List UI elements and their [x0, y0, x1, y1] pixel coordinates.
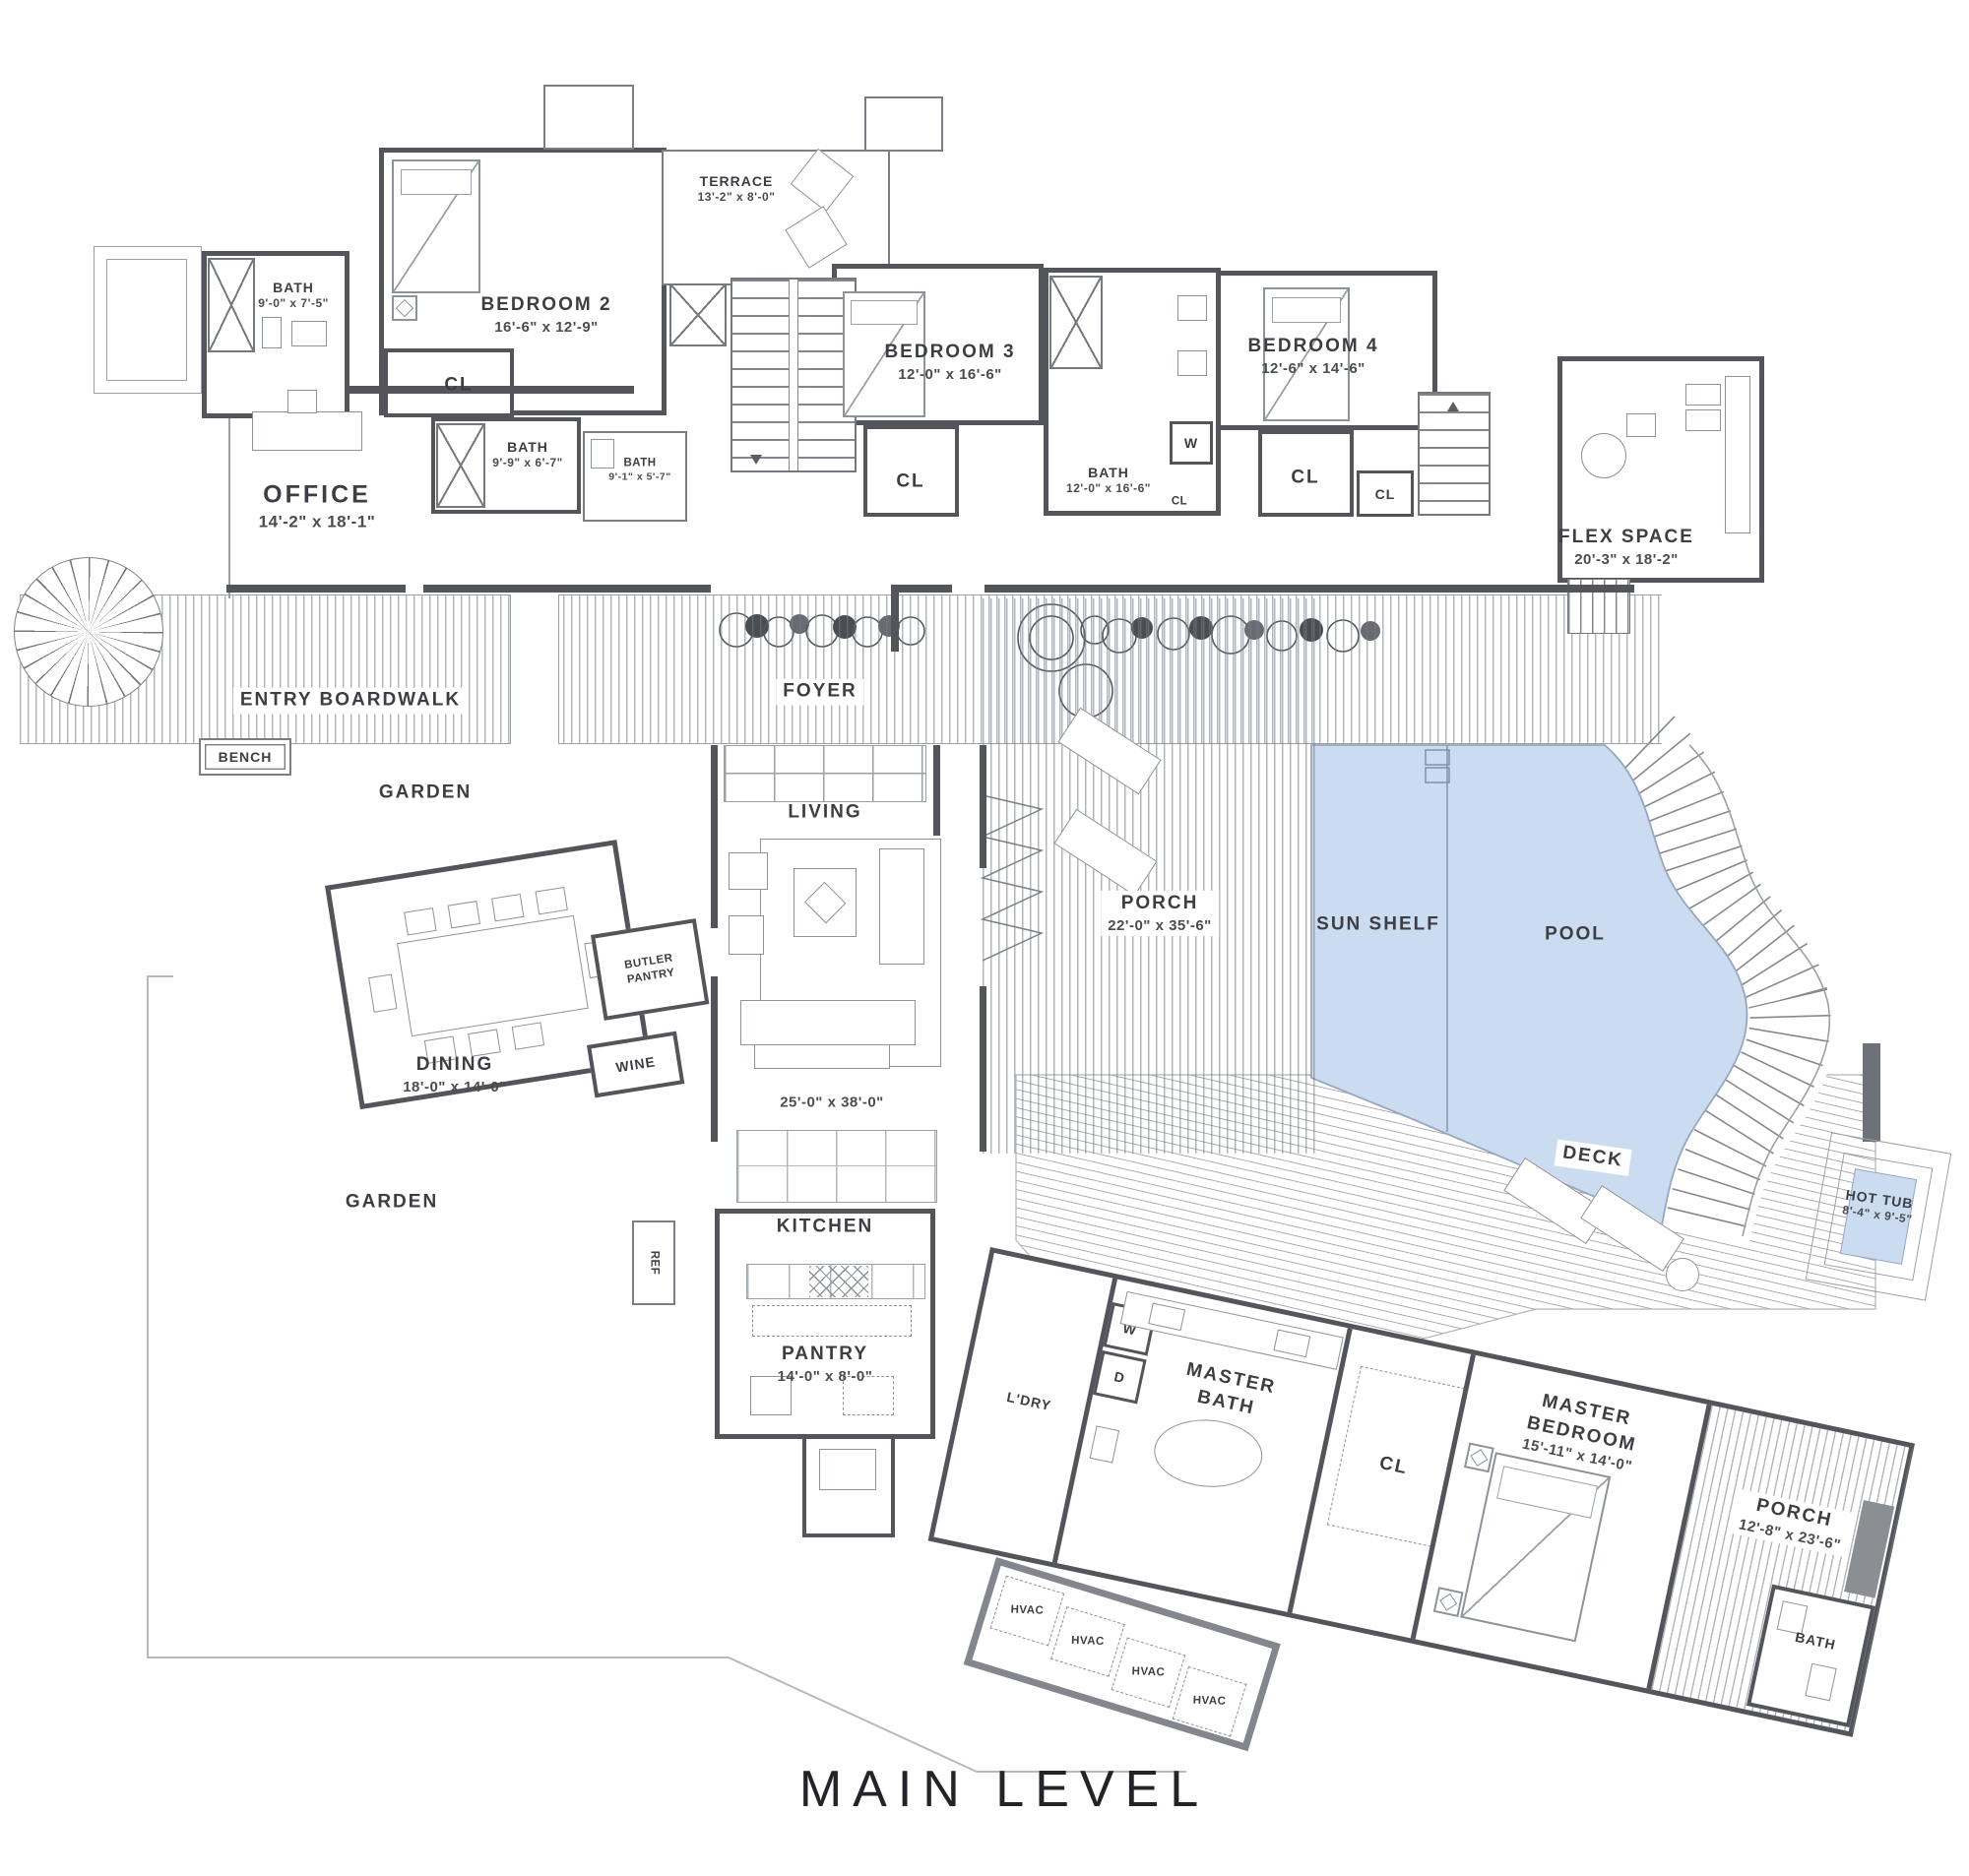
porch-area [983, 598, 1315, 1154]
room-label-bedroom3: BEDROOM 312'-0" x 16'-6" [884, 341, 1015, 384]
office-chair [287, 390, 317, 413]
area-label-garden2: GARDEN [346, 1191, 438, 1216]
kitchen-island [740, 1000, 916, 1045]
master-tub [1152, 1416, 1264, 1491]
steps-dark-post [1863, 1043, 1880, 1142]
room-label-butler-pantry: BUTLER PANTRY [603, 948, 697, 991]
room-label-terrace: TERRACE13'-2" x 8'-0" [698, 172, 776, 206]
flex-cushion2 [1685, 409, 1721, 431]
pool-label-sun-shelf: SUN SHELF [1316, 913, 1440, 938]
sink-bath4b [1177, 350, 1207, 376]
pool-label: POOL [1545, 923, 1606, 948]
shower-bath2 [436, 423, 485, 508]
boardwalk-step-gap [510, 594, 559, 744]
room-label-pantry: PANTRY14'-0" x 8'-0" [778, 1343, 873, 1386]
left-protrusion-inner [106, 259, 187, 381]
nightstand-master2 [1433, 1587, 1464, 1617]
wing-wall-1 [1052, 1279, 1117, 1564]
living-sofa-right [879, 848, 924, 965]
flex-sofa [1725, 376, 1750, 533]
room-label-bedroom4: BEDROOM 412'-6" x 14'-6" [1247, 335, 1378, 378]
bed-master [1460, 1452, 1611, 1642]
pantry-bumpout-inner [819, 1449, 876, 1490]
table-decor [804, 882, 846, 923]
hvac-label: HVAC [1131, 1664, 1165, 1680]
master-toilet [1090, 1425, 1120, 1463]
page-title: MAIN LEVEL [799, 1760, 1209, 1819]
room-butler-pantry: BUTLER PANTRY [591, 918, 709, 1021]
dining-chair [536, 887, 568, 914]
closet-label-bath4: CL [1172, 495, 1187, 510]
room-label-master-bath: MASTER BATH [1161, 1354, 1296, 1428]
hvac-label: HVAC [1010, 1603, 1044, 1619]
hvac-unit: HVAC [1173, 1666, 1247, 1737]
area-label-entry-boardwalk: ENTRY BOARDWALK [233, 688, 468, 715]
toilet-bath-tl [262, 317, 282, 348]
hvac-label: HVAC [1071, 1634, 1105, 1650]
bed-pillow [1496, 1466, 1597, 1518]
ref-label: REF [647, 1251, 662, 1276]
living-right-wall [933, 745, 940, 836]
hvac-unit: HVAC [1050, 1606, 1125, 1677]
main-wall-c [891, 585, 952, 593]
room-label-bath-tl: BATH9'-0" x 7'-5" [258, 279, 329, 312]
main-wall-b [423, 585, 711, 593]
nightstand-master1 [1464, 1442, 1494, 1472]
closet-label-bedroom4b: CL [1375, 485, 1396, 503]
main-stairs [730, 278, 857, 472]
dining-chair [512, 1022, 544, 1049]
flex-cushion1 [1685, 384, 1721, 406]
room-label-living: LIVING [788, 801, 861, 826]
flex-table [1626, 413, 1656, 437]
living-dimensions: 25'-0" x 38'-0" [780, 1093, 884, 1112]
room-label-flex-space: FLEX SPACE20'-3" x 18'-2" [1558, 526, 1694, 569]
floor-plan-canvas: BUTLER PANTRY WINE REF W D [0, 0, 1969, 1876]
living-left-wall-a [711, 745, 718, 928]
bed-pillow [401, 169, 472, 195]
flex-chair [1581, 433, 1626, 478]
main-wall-d [984, 585, 1634, 593]
ref-closet: REF [632, 1220, 675, 1305]
porch-left-wall-a [980, 745, 986, 868]
main-wall-a [226, 585, 406, 593]
deck-table [1666, 1258, 1699, 1291]
porch-left-wall-b [980, 986, 986, 1152]
living-coffee-table [794, 868, 857, 937]
kitchen-counter [736, 1130, 937, 1203]
area-label-foyer: FOYER [776, 679, 863, 706]
area-label-porch-main: PORCH22'-0" x 35'-6" [1101, 891, 1219, 936]
closet-label-bedroom4: CL [1291, 467, 1319, 491]
dining-table [397, 915, 589, 1036]
pantry-stove-hatch [809, 1266, 868, 1297]
bed-bedroom2 [392, 159, 480, 293]
dryer-label: D [1112, 1367, 1127, 1387]
hvac-unit: HVAC [990, 1576, 1065, 1647]
dining-chair [368, 973, 397, 1012]
hvac-unit: HVAC [1112, 1637, 1186, 1708]
pantry-shelf-dashed [752, 1305, 912, 1337]
nightstand [392, 295, 417, 321]
bed-pillow [1272, 297, 1342, 323]
bedroom2-bumpout [543, 85, 634, 150]
shower-bath4 [1049, 276, 1103, 369]
room-label-wine: WINE [614, 1052, 657, 1076]
room-label-bath2: BATH9'-9" x 6'-7" [492, 438, 563, 471]
entry-boardwalk-strip [20, 594, 1662, 744]
living-window-row [724, 745, 926, 802]
office-desk [252, 411, 362, 451]
dining-chair [448, 901, 480, 928]
skylight-stair [669, 283, 727, 346]
living-chair2 [729, 915, 764, 955]
room-label-bath4: BATH12'-0" x 16'-6" [1066, 464, 1151, 497]
room-label-dining: DINING18'-0" x 14'-0" [403, 1053, 507, 1096]
shower-bath-tl [208, 258, 255, 352]
closet-label-bedroom3: CL [896, 470, 924, 495]
living-chair1 [729, 852, 768, 890]
room-label-kitchen: KITCHEN [772, 1216, 878, 1240]
room-label-bath3: BATH9'-1" x 5'-7" [608, 457, 670, 485]
closet-label-bedroom2: CL [444, 374, 473, 399]
living-left-wall-b [711, 976, 718, 1142]
washer-label-top: W [1184, 434, 1198, 452]
bed-pillow [851, 300, 917, 325]
area-label-garden1: GARDEN [379, 782, 472, 806]
dining-chair [404, 907, 436, 935]
bath-br-toilet [1805, 1663, 1837, 1702]
dining-chair [491, 894, 524, 921]
room-label-office: OFFICE14'-2" x 18'-1" [259, 479, 376, 533]
hvac-label: HVAC [1192, 1694, 1226, 1710]
stair-up-arrow [1447, 402, 1459, 411]
sink-bath4a [1177, 295, 1207, 321]
dryer-box: D [1093, 1350, 1147, 1405]
main-wall-c2 [891, 585, 899, 652]
terrace-bumpout [864, 96, 943, 152]
bench-label: BENCH [219, 748, 273, 766]
stair-rail [789, 280, 798, 470]
office-top-wall [347, 386, 634, 394]
sink-bath-tl [291, 321, 327, 346]
room-label-bedroom2: BEDROOM 216'-6" x 12'-9" [480, 293, 611, 337]
room-label-laundry: L'DRY [1005, 1388, 1053, 1414]
spiral-tree [14, 557, 163, 707]
stair-down-arrow [750, 455, 762, 465]
office-left-line [228, 394, 230, 598]
